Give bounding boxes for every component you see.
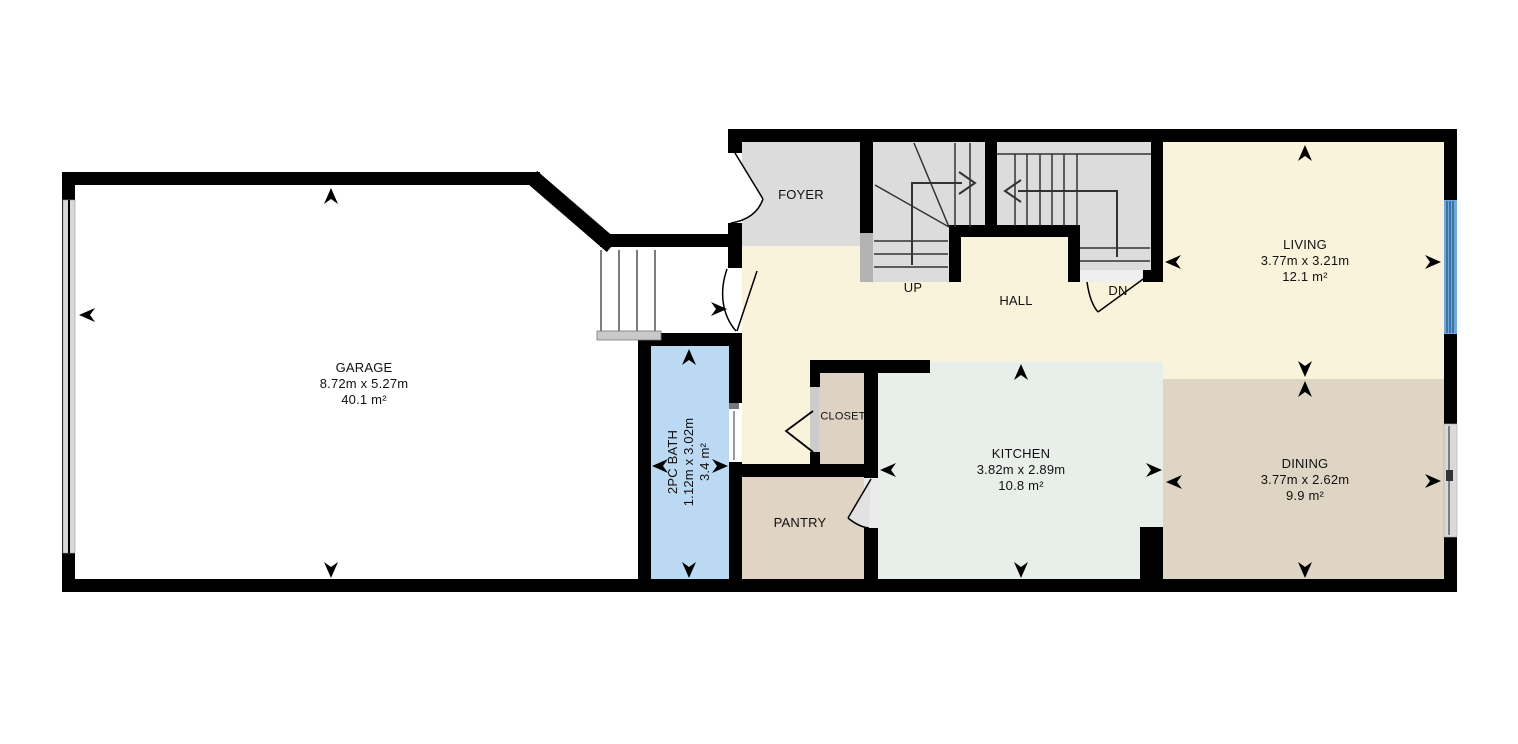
bath-pocket-door-stop (729, 403, 739, 409)
room-floors (651, 142, 1444, 579)
arrow-down-icon (324, 562, 338, 578)
room-name: LIVING (1261, 237, 1350, 253)
wall-segment (864, 360, 878, 478)
stairs-up-label: UP (904, 280, 922, 296)
room-area: 12.1 m² (1261, 269, 1350, 285)
wall-segment (949, 225, 1080, 237)
wall-diagonal-segment (532, 177, 612, 246)
stairs-label: DN (1108, 283, 1127, 299)
wall-segment (1068, 225, 1080, 282)
stairs-down-lower-floor (1080, 227, 1151, 274)
stairs-down-door-gap (1080, 270, 1143, 282)
room-dims: 3.82m x 2.89m (977, 462, 1066, 478)
floorplan: GARAGE 8.72m x 5.27m 40.1 m² FOYER UP DN… (0, 0, 1518, 744)
wall-segment (860, 142, 873, 235)
room-label-kitchen: KITCHEN 3.82m x 2.89m 10.8 m² (977, 446, 1066, 494)
room-name: 2PC BATH (665, 418, 681, 507)
wall-segment (729, 462, 742, 579)
room-label-dining: DINING 3.77m x 2.62m 9.9 m² (1261, 456, 1350, 504)
room-dims: 8.72m x 5.27m (320, 376, 409, 392)
arrow-up-icon (324, 188, 338, 204)
room-name: DINING (1261, 456, 1350, 472)
bath-pocket-door-opening (729, 403, 742, 462)
room-label-pantry: PANTRY (774, 515, 827, 531)
room-dims: 3.77m x 3.21m (1261, 253, 1350, 269)
wall-segment (1444, 129, 1457, 200)
wall-segment (62, 579, 1457, 592)
room-name: PANTRY (774, 515, 827, 531)
wall-segment (864, 528, 878, 579)
closet-door-track (810, 387, 819, 452)
room-label-living: LIVING 3.77m x 3.21m 12.1 m² (1261, 237, 1350, 285)
room-name: FOYER (778, 187, 824, 203)
room-label-foyer: FOYER (778, 187, 824, 203)
stairs-up-landing-strip (860, 233, 873, 282)
stairs-down-label: DN (1108, 283, 1127, 299)
wall-segment (62, 172, 540, 185)
wall-segment (729, 346, 742, 403)
wall-segment (949, 225, 961, 282)
room-hall-corridor-floor (742, 379, 812, 465)
wall-segment (1444, 537, 1457, 592)
wall-segment (728, 223, 742, 268)
wall-segment (985, 142, 997, 227)
room-label-hall: HALL (999, 293, 1032, 309)
wall-segment (1444, 334, 1457, 424)
floorplan-drawing (0, 0, 1518, 744)
room-area: 3.4 m² (697, 418, 713, 507)
wall-segment (728, 129, 1457, 142)
room-label-garage: GARAGE 8.72m x 5.27m 40.1 m² (320, 360, 409, 408)
room-name: CLOSET (820, 411, 865, 424)
wall-segment (742, 464, 878, 477)
dining-sliding-door-handle (1446, 470, 1453, 481)
room-dims: 3.77m x 2.62m (1261, 472, 1350, 488)
arrow-left-icon (79, 308, 95, 322)
room-label-bath: 2PC BATH 1.12m x 3.02m 3.4 m² (665, 418, 713, 507)
wall-segment (1151, 142, 1163, 282)
room-name: KITCHEN (977, 446, 1066, 462)
room-area: 10.8 m² (977, 478, 1066, 494)
room-area: 40.1 m² (320, 392, 409, 408)
stairs-label: UP (904, 280, 922, 296)
exterior-steps-edge (597, 331, 661, 340)
room-area: 9.9 m² (1261, 488, 1350, 504)
wall-segment (600, 234, 742, 247)
arrow-right-icon (711, 302, 727, 316)
wall-segment (728, 142, 742, 153)
stairs-up-floor (873, 142, 985, 227)
room-label-closet: CLOSET (820, 411, 865, 424)
wall-segment (638, 333, 651, 592)
wall-segment (1140, 527, 1163, 579)
room-name: GARAGE (320, 360, 409, 376)
room-name: HALL (999, 293, 1032, 309)
wall-segment (810, 360, 820, 387)
room-dims: 1.12m x 3.02m (681, 418, 697, 507)
exterior-steps (601, 250, 655, 331)
